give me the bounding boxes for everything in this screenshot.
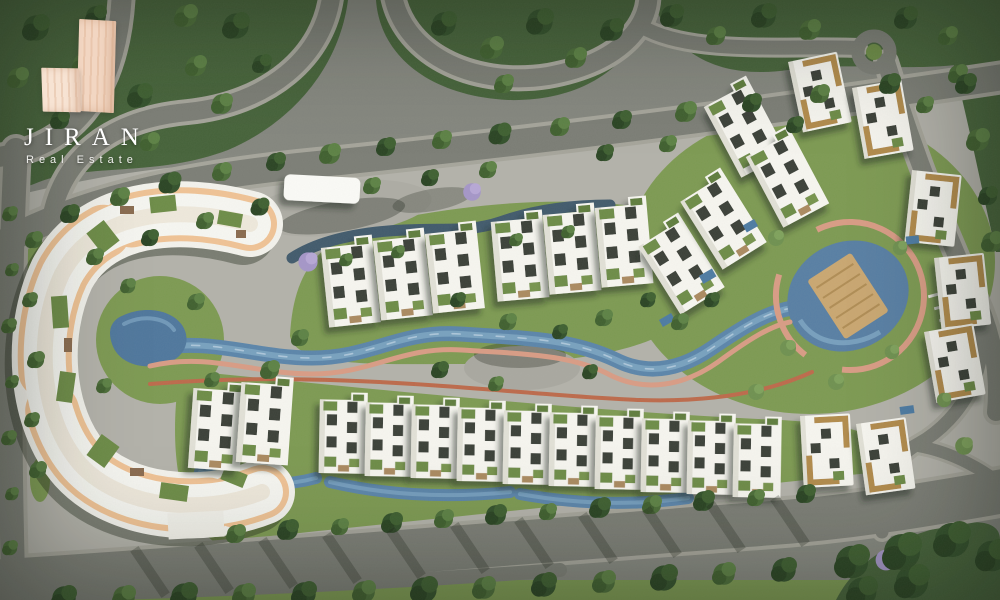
brand-logo: JIRAN Real Estate [22,16,172,166]
masterplan-scene: JIRAN Real Estate [0,0,1000,600]
logo-tall-tower [77,19,116,113]
logo-short-tower [41,68,81,113]
brand-name: JIRAN [24,124,172,152]
brand-logo-mark-icon [22,16,152,114]
brand-tagline: Real Estate [26,154,172,166]
